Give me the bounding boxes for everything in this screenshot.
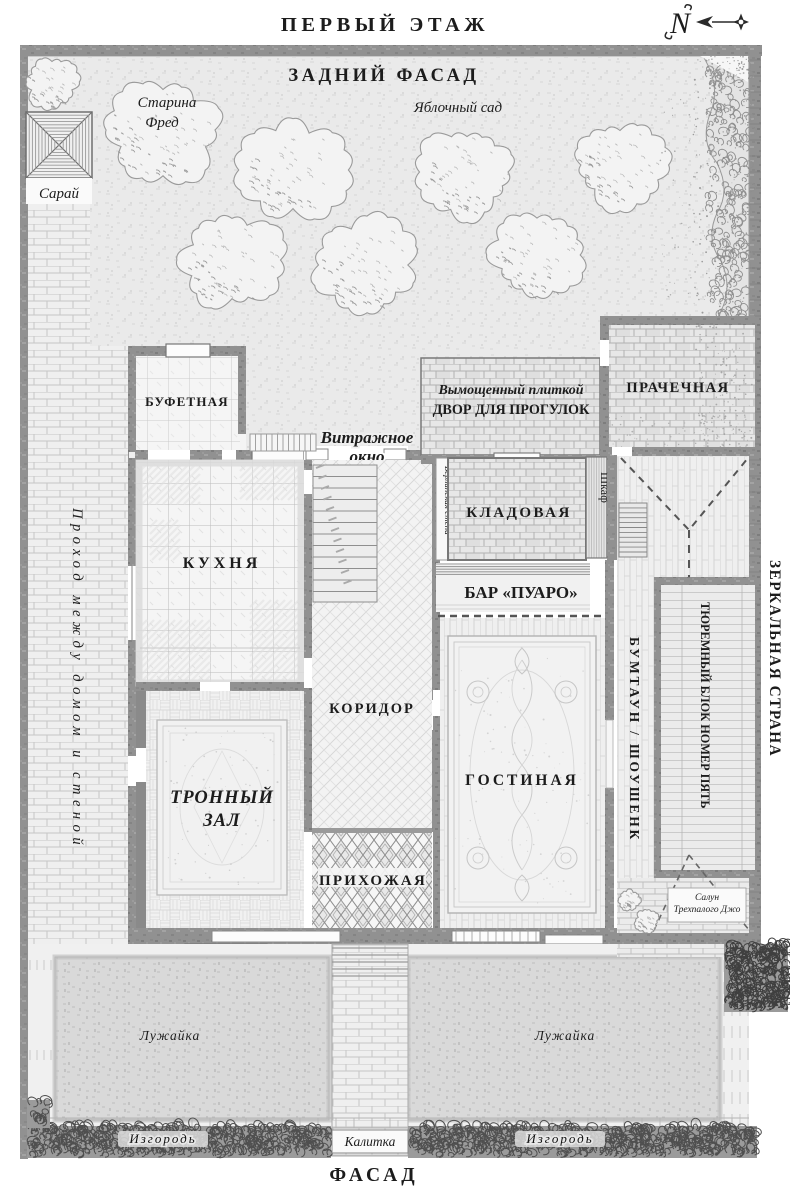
svg-text:Проход между домом и стеной: Проход между домом и стеной <box>69 507 85 850</box>
svg-text:Старина: Старина <box>138 95 197 111</box>
svg-text:Трехпалого Джо: Трехпалого Джо <box>674 905 741 915</box>
svg-text:ЗАДНИЙ ФАСАД: ЗАДНИЙ ФАСАД <box>288 64 479 86</box>
svg-text:Яблочный сад: Яблочный сад <box>413 100 503 116</box>
svg-text:ПЕРВЫЙ ЭТАЖ: ПЕРВЫЙ ЭТАЖ <box>281 13 489 36</box>
svg-text:Салун: Салун <box>695 893 719 903</box>
svg-text:Изгородь: Изгородь <box>525 1131 593 1146</box>
svg-text:Вымощенный плиткой: Вымощенный плиткой <box>437 383 583 398</box>
svg-text:Изгородь: Изгородь <box>128 1131 196 1146</box>
svg-text:ДВОР ДЛЯ ПРОГУЛОК: ДВОР ДЛЯ ПРОГУЛОК <box>433 402 590 418</box>
svg-text:БАР «ПУАРО»: БАР «ПУАРО» <box>464 583 577 602</box>
svg-text:ГОСТИНАЯ: ГОСТИНАЯ <box>465 772 579 789</box>
svg-text:Фред: Фред <box>145 115 179 131</box>
svg-text:ПРАЧЕЧНАЯ: ПРАЧЕЧНАЯ <box>626 380 729 396</box>
svg-text:Калитка: Калитка <box>344 1134 396 1149</box>
svg-text:Лужайка: Лужайка <box>139 1028 200 1043</box>
svg-text:ТРОННЫЙ: ТРОННЫЙ <box>170 785 274 808</box>
svg-text:Витражное: Витражное <box>320 428 414 447</box>
svg-text:КУХНЯ: КУХНЯ <box>183 555 262 572</box>
svg-text:ТЮРЕМНЫЙ БЛОК НОМЕР ПЯТЬ: ТЮРЕМНЫЙ БЛОК НОМЕР ПЯТЬ <box>698 602 712 809</box>
svg-text:N: N <box>669 7 692 40</box>
svg-text:БУФЕТНАЯ: БУФЕТНАЯ <box>145 394 229 409</box>
svg-text:Лужайка: Лужайка <box>534 1028 595 1043</box>
svg-text:Сарай: Сарай <box>39 186 80 202</box>
svg-text:ЗАЛ: ЗАЛ <box>202 811 241 831</box>
svg-text:ЗЕРКАЛЬНАЯ СТРАНА: ЗЕРКАЛЬНАЯ СТРАНА <box>766 560 783 757</box>
svg-text:КЛАДОВАЯ: КЛАДОВАЯ <box>466 505 572 521</box>
svg-text:БУМТАУН / ШОУШЕНК: БУМТАУН / ШОУШЕНК <box>627 637 642 842</box>
svg-text:ФАСАД: ФАСАД <box>329 1165 418 1186</box>
svg-text:КОРИДОР: КОРИДОР <box>329 701 415 717</box>
svg-text:ПРИХОЖАЯ: ПРИХОЖАЯ <box>319 873 427 889</box>
